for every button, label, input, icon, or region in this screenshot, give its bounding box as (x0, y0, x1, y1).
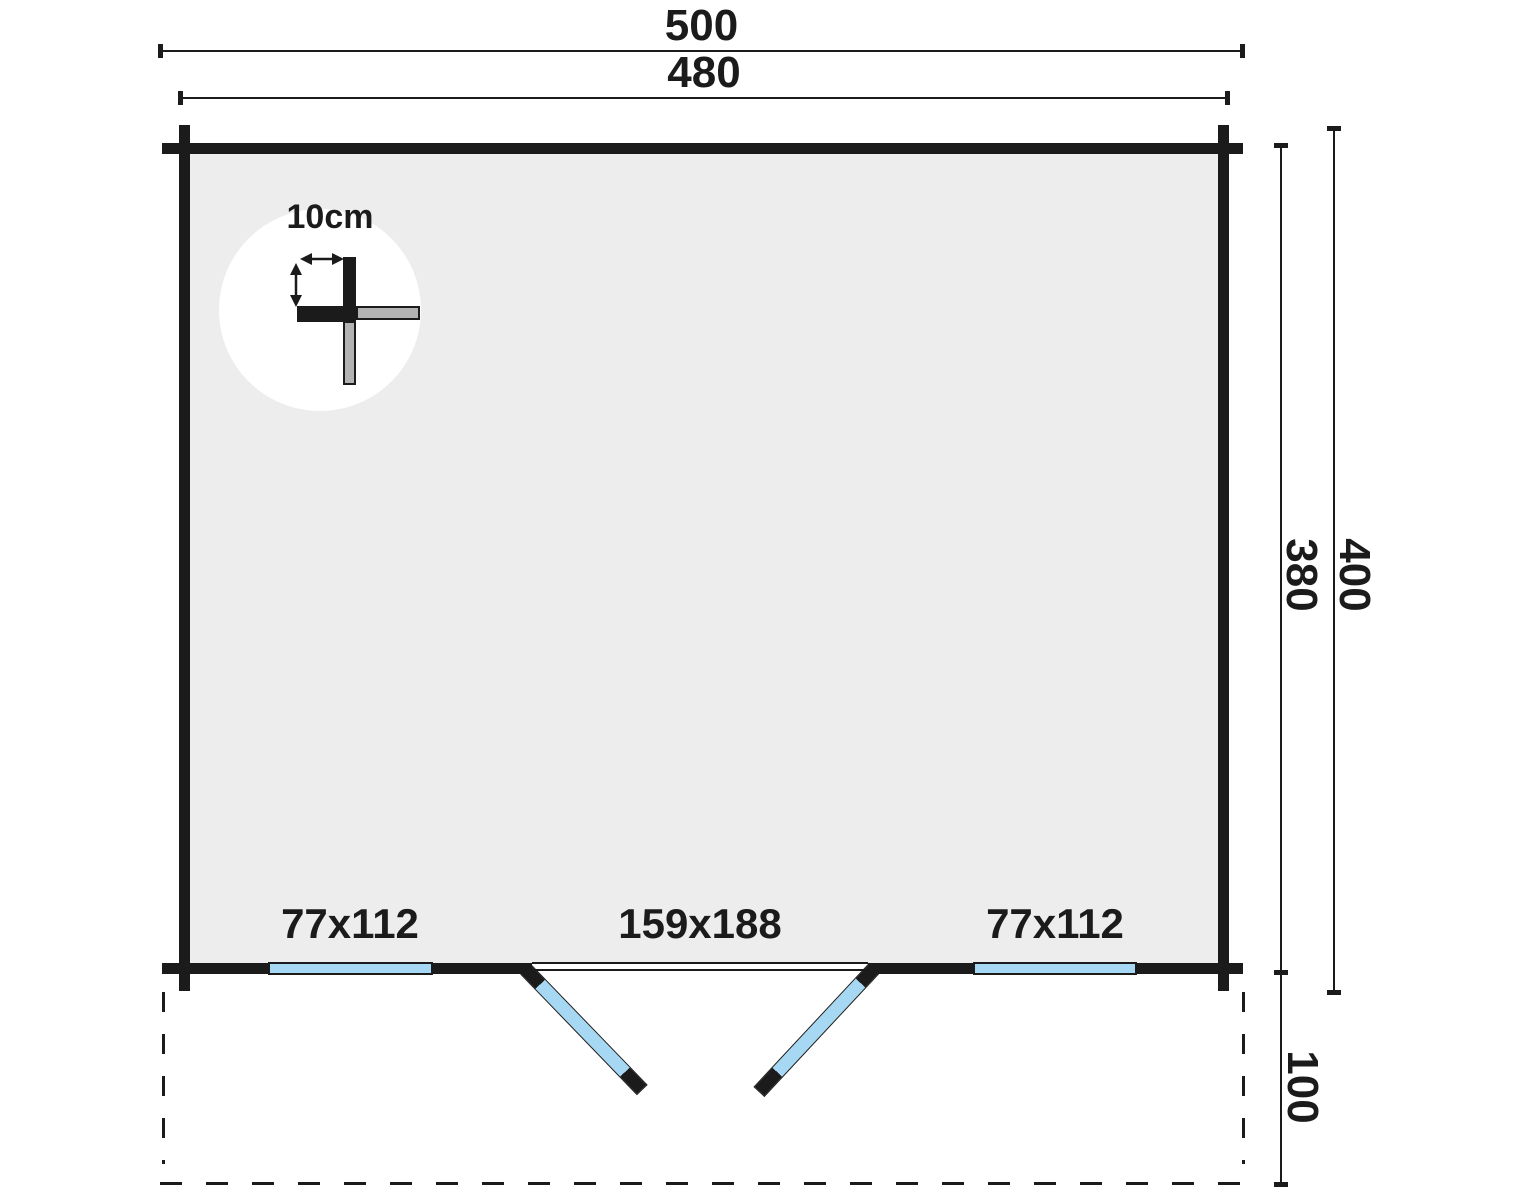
dim-tick (1327, 990, 1341, 995)
wall-bottom-segment-1 (162, 963, 268, 974)
width-arrow-head-left (300, 253, 312, 265)
width-arrow-head-right (332, 253, 344, 265)
dim-label-inner-depth: 380 (1279, 538, 1323, 611)
dim-tick (1274, 143, 1288, 148)
floorplan-canvas: 500 480 380 400 100 10cm (0, 0, 1536, 1193)
dim-line-inner-width (180, 97, 1228, 99)
door-panel-left (520, 964, 647, 1095)
dim-tick (1327, 126, 1341, 131)
window-right (973, 962, 1137, 975)
corner-joint-detail-svg (280, 240, 430, 390)
label-window-right: 77x112 (955, 902, 1155, 946)
dim-tick (1274, 1182, 1288, 1187)
height-arrow-head-bottom (290, 295, 302, 307)
wall-top (162, 143, 1243, 154)
porch-dashed-left (162, 992, 165, 1164)
wall-bottom-segment-3 (867, 963, 973, 974)
height-arrow-head-top (290, 263, 302, 275)
porch-dashed-right (1242, 992, 1245, 1164)
porch-dashed-bottom (160, 1182, 1245, 1185)
detail-label-wall-thickness: 10cm (230, 200, 430, 234)
dim-tick (1240, 44, 1245, 58)
label-door: 159x188 (530, 902, 870, 946)
detail-log-end-down (344, 322, 355, 384)
dim-label-outer-width: 500 (160, 4, 1243, 48)
dim-label-porch-depth: 100 (1280, 1050, 1324, 1123)
wall-bottom-segment-4 (1137, 963, 1243, 974)
dim-tick (178, 91, 183, 105)
wall-bottom-segment-2 (433, 963, 532, 974)
door-panel-right (753, 964, 879, 1097)
wall-right (1218, 125, 1229, 991)
wall-left (179, 125, 190, 991)
detail-log-end-right (357, 307, 419, 319)
detail-wall-horizontal (297, 306, 356, 322)
dim-tick (1225, 91, 1230, 105)
dim-label-inner-width: 480 (180, 51, 1228, 95)
dim-label-outer-depth: 400 (1332, 538, 1376, 611)
dim-tick (158, 44, 163, 58)
label-window-left: 77x112 (250, 902, 450, 946)
window-left (268, 962, 433, 975)
door-threshold (532, 962, 868, 971)
